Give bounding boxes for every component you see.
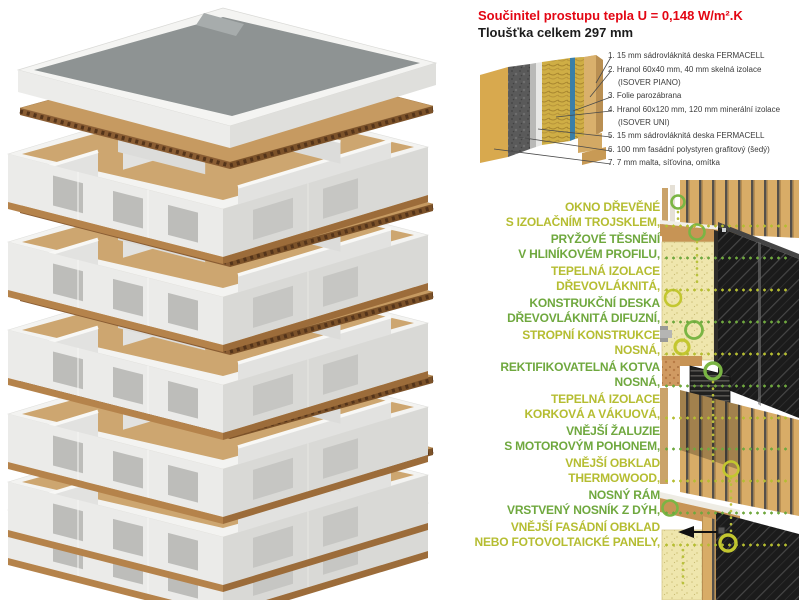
facade-label: TEPELNÁ IZOLACE KORKOVÁ A VÁKUOVÁ, xyxy=(405,392,660,422)
wall-subtitle: Tloušťka celkem 297 mm xyxy=(478,25,633,40)
wall-layers xyxy=(480,55,606,165)
wall-title: Součinitel prostupu tepla U = 0,148 W/m²… xyxy=(478,8,743,23)
facade-label: VNĚJŠÍ OBKLAD THERMOWOOD, xyxy=(405,456,660,486)
leader-dots xyxy=(663,384,789,388)
leader-dots xyxy=(663,256,789,260)
facade-label: STROPNÍ KONSTRUKCE NOSNÁ, xyxy=(405,328,660,358)
leader-dots xyxy=(663,352,789,356)
wall-section-figure xyxy=(478,45,799,180)
facade-label: KONSTRUKČNÍ DESKA DŘEVOVLÁKNITÁ DIFUZNÍ, xyxy=(405,296,660,326)
exploded-building-figure xyxy=(0,0,455,600)
leader-dots xyxy=(663,416,789,420)
leader-dots xyxy=(663,224,789,228)
leader-dots xyxy=(663,479,789,483)
building-stack xyxy=(8,8,436,600)
leader-dots xyxy=(663,288,789,292)
leader-dots xyxy=(663,447,789,451)
leader-dots xyxy=(663,511,789,515)
facade-label: OKNO DŘEVĚNÉ S IZOLAČNÍM TROJSKLEM, xyxy=(405,200,660,230)
facade-label: VNĚJŠÍ ŽALUZIE S MOTOROVÝM POHONEM, xyxy=(405,424,660,454)
facade-label: TEPELNÁ IZOLACE DŘEVOVLÁKNITÁ, xyxy=(405,264,660,294)
page: Součinitel prostupu tepla U = 0,148 W/m²… xyxy=(0,0,799,600)
facade-label: NOSNÝ RÁM VRSTVENÝ NOSNÍK Z DÝH, xyxy=(405,488,660,518)
facade-label: PRYŽOVÉ TĚSNĚNÍ V HLINÍKOVÉM PROFILU, xyxy=(405,232,660,262)
leader-dots xyxy=(663,320,789,324)
facade-section-figure xyxy=(660,180,799,600)
facade-drawing xyxy=(660,180,799,600)
leader-dots xyxy=(663,543,789,547)
facade-labels: OKNO DŘEVĚNÉ S IZOLAČNÍM TROJSKLEM, PRYŽ… xyxy=(405,200,660,552)
facade-label: REKTIFIKOVATELNÁ KOTVA NOSNÁ, xyxy=(405,360,660,390)
facade-label: VNĚJŠÍ FASÁDNÍ OBKLAD NEBO FOTOVOLTAICKÉ… xyxy=(405,520,660,550)
